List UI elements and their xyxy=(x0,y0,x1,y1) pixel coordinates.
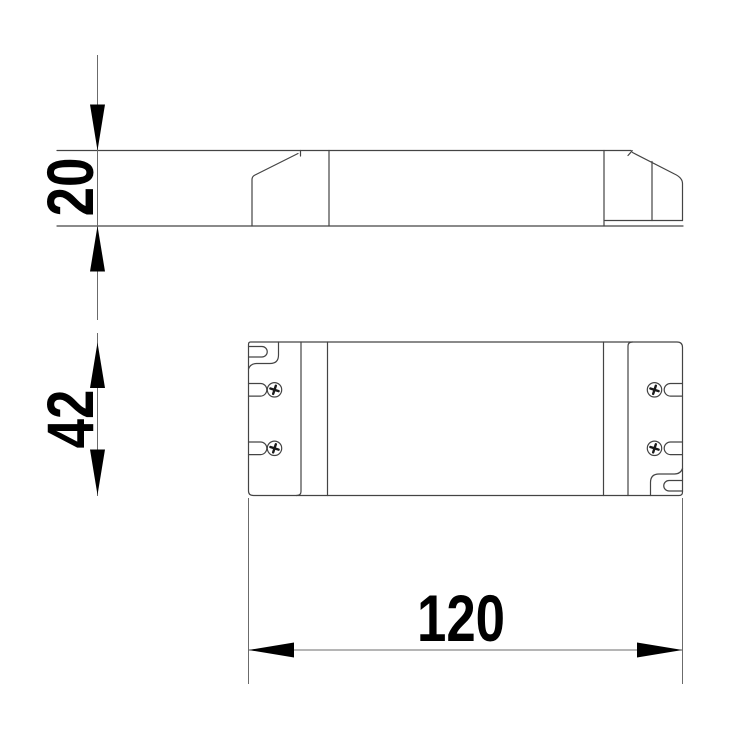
side-view xyxy=(57,151,683,227)
dim-arrow-height-bottom xyxy=(90,226,105,272)
drawing-canvas: 20 42 120 xyxy=(0,0,750,750)
dimension-lines xyxy=(98,55,683,684)
dimension-arrows xyxy=(90,105,683,658)
cable-slot-bottom-right xyxy=(664,481,683,492)
cable-slot-top-left xyxy=(249,347,268,358)
plan-view xyxy=(249,342,683,496)
mount-slot-left-lower xyxy=(249,442,267,455)
dim-arrow-length-left xyxy=(249,643,295,658)
dim-label-length: 120 xyxy=(417,581,505,655)
dim-arrow-width-bottom xyxy=(90,450,105,496)
side-view-left-endcap-chamfer xyxy=(252,154,298,227)
plan-view-right-flange-line xyxy=(628,342,633,496)
dim-label-width: 42 xyxy=(33,390,107,449)
phillips-cross-icon xyxy=(649,443,660,454)
dim-arrow-width-top xyxy=(90,343,105,389)
phillips-cross-icon xyxy=(649,384,660,395)
phillips-cross-icon xyxy=(269,443,280,454)
technical-drawing: 20 42 120 xyxy=(0,0,750,750)
dim-arrow-height-top xyxy=(90,105,105,151)
dim-arrow-length-right xyxy=(637,643,683,658)
mount-slot-right-lower xyxy=(664,442,682,455)
mount-slot-left-upper xyxy=(249,384,267,397)
dimension-labels: 20 42 120 xyxy=(33,158,505,656)
side-view-right-endcap-chamfer xyxy=(633,153,683,221)
dim-label-height: 20 xyxy=(33,158,107,217)
plan-view-outline xyxy=(249,342,683,496)
mount-slot-right-upper xyxy=(664,384,682,397)
phillips-cross-icon xyxy=(269,384,280,395)
object-lines xyxy=(57,151,683,496)
plan-view-left-flange-line xyxy=(297,342,302,496)
side-view-right-endcap-step xyxy=(628,151,632,156)
